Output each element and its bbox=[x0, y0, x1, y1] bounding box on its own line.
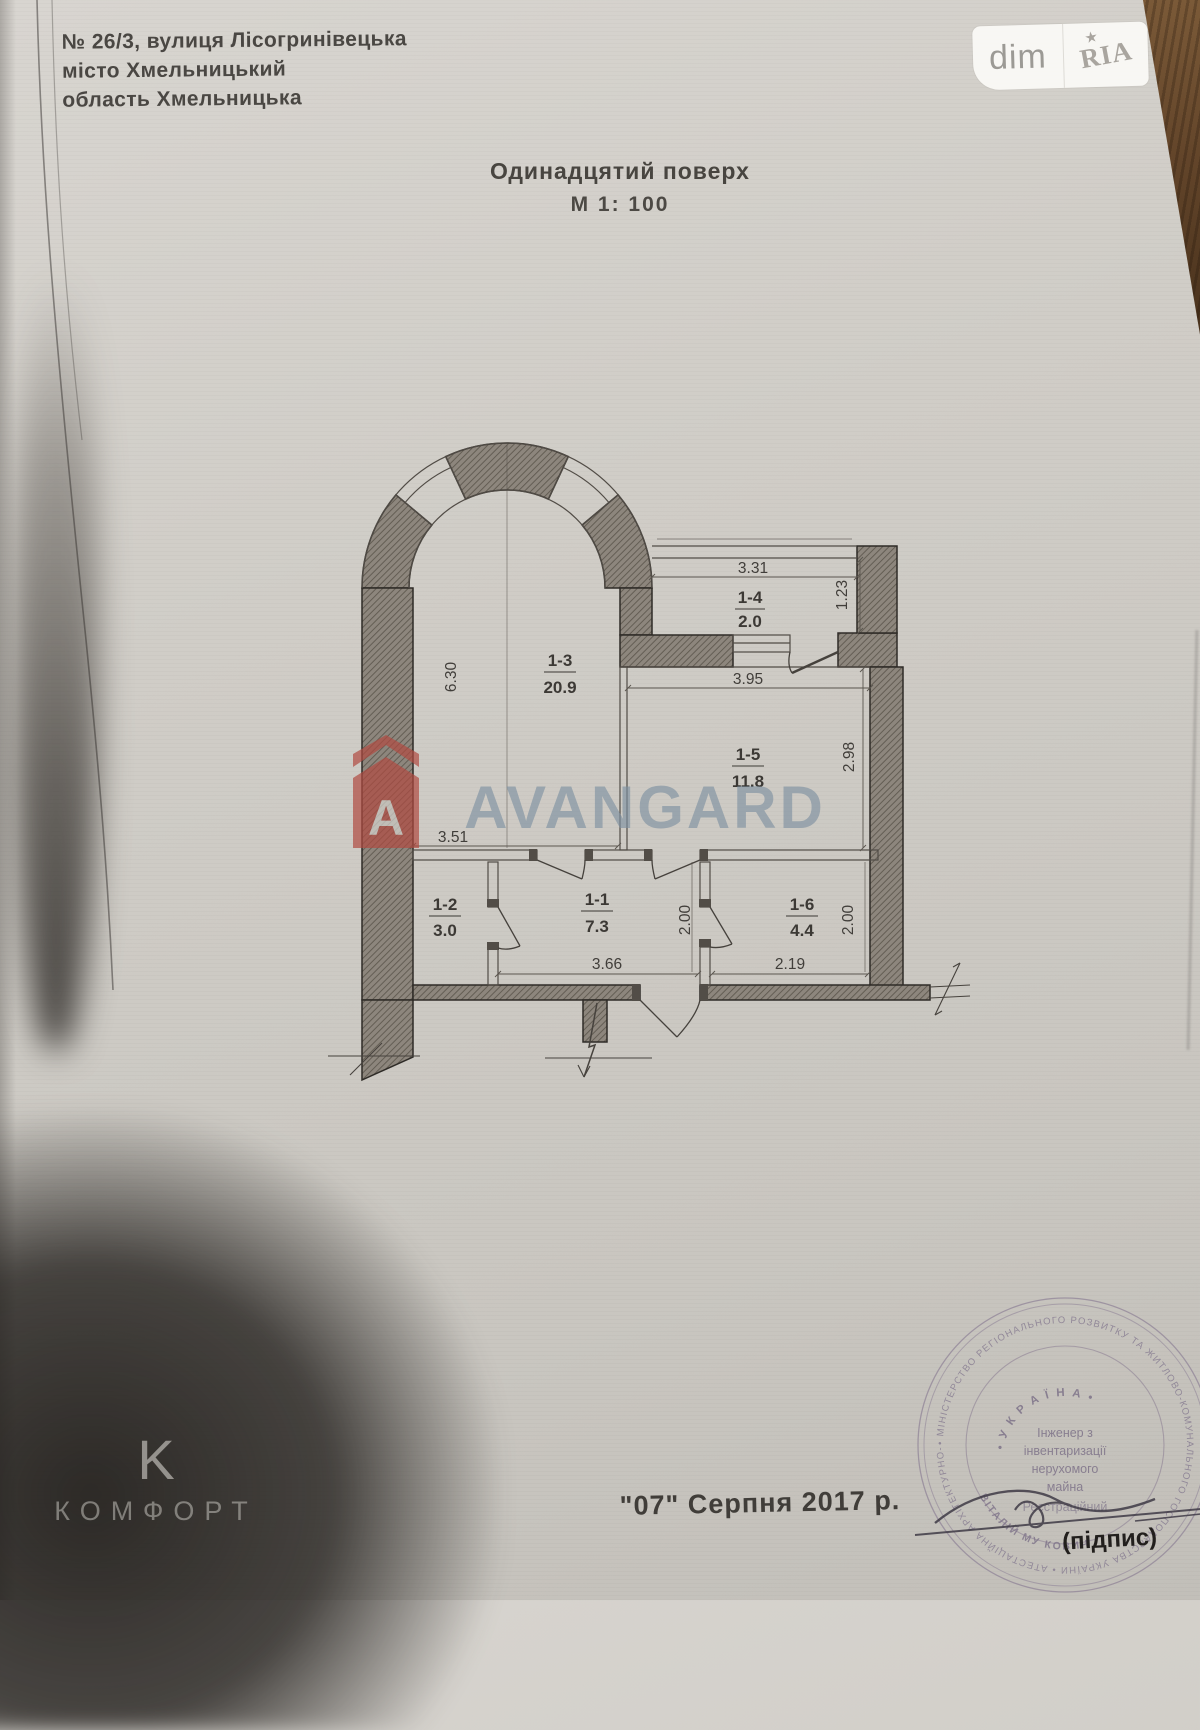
dim-label: 3.95 bbox=[733, 671, 763, 688]
left-fold-shadow bbox=[14, 270, 98, 1050]
entrance-wall-stub bbox=[583, 1000, 607, 1042]
door-swings bbox=[498, 652, 838, 1037]
door-living-hall bbox=[537, 860, 582, 879]
svg-text:• У К Р А Ї Н А •: • У К Р А Ї Н А • bbox=[995, 1387, 1096, 1451]
address-line-3: область Хмельницька bbox=[62, 82, 408, 115]
hall-bath-partition-b bbox=[700, 947, 710, 985]
room-label: 1-4 bbox=[738, 588, 763, 607]
door-balcony bbox=[792, 652, 838, 673]
avangard-logo-letter: A bbox=[368, 790, 404, 846]
room-area: 20.9 bbox=[543, 678, 576, 697]
balcony-right-wall bbox=[857, 546, 897, 633]
door-wc bbox=[498, 907, 520, 946]
left-edge-shadow bbox=[0, 0, 16, 1600]
scanned-floorplan-page: { "header": { "address1": "№ 26/3, вулиц… bbox=[0, 0, 1200, 1600]
wc-hall-partition-b bbox=[488, 948, 498, 985]
dim-label: 3.66 bbox=[592, 956, 622, 973]
dim-ria-logo: dim ★ RIA bbox=[972, 22, 1149, 91]
dim-label: 2.00 bbox=[840, 905, 857, 936]
dim-label: 2.98 bbox=[841, 742, 858, 772]
room-label: 1-2 bbox=[433, 895, 458, 914]
property-address: № 26/3, вулиця Лісогринівецька місто Хме… bbox=[62, 24, 408, 115]
avangard-watermark-text: AVANGARD bbox=[464, 774, 826, 841]
door-entrance bbox=[640, 1000, 677, 1037]
balcony-corner-block bbox=[838, 633, 897, 667]
hall-top-partition-b bbox=[585, 850, 652, 860]
komfort-logo: K КОМФОРТ bbox=[36, 1432, 276, 1527]
bottom-wall-left bbox=[413, 985, 640, 1000]
right-outer-wall bbox=[870, 667, 903, 987]
dim-label: 6.30 bbox=[443, 662, 460, 693]
dim-label: 1.23 bbox=[834, 580, 851, 610]
document-title-block: Одинадцятий поверх М 1: 100 bbox=[410, 158, 830, 217]
floorplan-drawing: 1-3 20.9 1-4 2.0 1-5 11.8 1-2 3.0 1-1 7.… bbox=[320, 415, 980, 1115]
dim-logo-cell: dim bbox=[972, 24, 1064, 90]
svg-text:нерухомого: нерухомого bbox=[1032, 1462, 1099, 1476]
stamp-center-text: Інженер з інвентаризації нерухомого майн… bbox=[1023, 1426, 1108, 1514]
engineer-stamp: • МІНІСТЕРСТВО РЕГІОНАЛЬНОГО РОЗВИТКУ ТА… bbox=[905, 1285, 1200, 1605]
room-area: 3.0 bbox=[433, 921, 457, 940]
room-label: 1-1 bbox=[585, 890, 610, 909]
komfort-logo-text: КОМФОРТ bbox=[36, 1496, 276, 1527]
room-area: 7.3 bbox=[585, 917, 609, 936]
dim-label: 3.31 bbox=[738, 560, 768, 577]
ria-star-icon: ★ bbox=[1083, 27, 1100, 47]
room-area: 4.4 bbox=[790, 921, 814, 940]
bottom-left-shadow bbox=[0, 1110, 500, 1730]
dim-logo-text: dim bbox=[988, 37, 1047, 78]
room-label: 1-3 bbox=[548, 651, 573, 670]
svg-text:інвентаризації: інвентаризації bbox=[1024, 1444, 1107, 1458]
right-paper-crease bbox=[1187, 630, 1199, 1050]
door-bath bbox=[710, 907, 732, 944]
bay-glazing-arc-right bbox=[563, 468, 609, 503]
bay-glazing-arc-left bbox=[405, 468, 451, 503]
komfort-logo-letter: K bbox=[36, 1432, 276, 1488]
bottom-wall-right bbox=[700, 985, 930, 1000]
door-kitchen-hall bbox=[655, 860, 700, 879]
hall-top-partition-c bbox=[700, 850, 878, 860]
dim-label: 2.00 bbox=[677, 905, 694, 936]
address-line-2: місто Хмельницький bbox=[62, 53, 408, 86]
hall-top-partition-a bbox=[413, 850, 537, 860]
svg-text:Інженер з: Інженер з bbox=[1037, 1426, 1093, 1440]
document-date: "07" Серпня 2017 р. bbox=[565, 1484, 956, 1523]
room-area: 2.0 bbox=[738, 612, 762, 631]
signature-caption: (підпис) bbox=[1061, 1524, 1157, 1556]
ria-logo-cell: ★ RIA bbox=[1063, 22, 1149, 88]
living-right-wall bbox=[620, 588, 652, 635]
room-label: 1-5 bbox=[736, 745, 761, 764]
left-wall-foot bbox=[362, 1000, 413, 1080]
svg-text:майна: майна bbox=[1047, 1480, 1083, 1494]
page-title: Одинадцятий поверх bbox=[410, 158, 830, 185]
stamp-country-text: • У К Р А Ї Н А • bbox=[995, 1387, 1096, 1451]
address-line-1: № 26/3, вулиця Лісогринівецька bbox=[62, 24, 408, 57]
drawing-scale: М 1: 100 bbox=[410, 193, 830, 217]
dim-label: 2.19 bbox=[775, 956, 805, 973]
room-label: 1-6 bbox=[790, 895, 815, 914]
living-balcony-wall bbox=[620, 635, 733, 667]
